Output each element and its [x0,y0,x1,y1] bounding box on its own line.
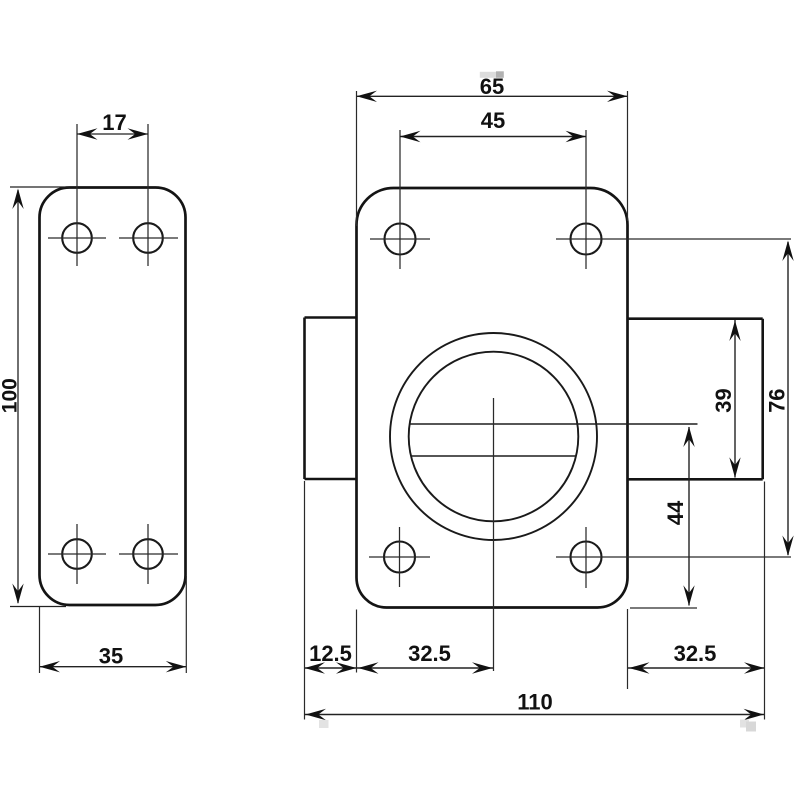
svg-text:110: 110 [517,690,553,715]
svg-text:17: 17 [102,110,126,135]
svg-text:35: 35 [99,644,123,669]
svg-text:32.5: 32.5 [674,641,717,666]
svg-text:100: 100 [0,378,21,413]
svg-text:12.5: 12.5 [309,641,352,666]
svg-text:76: 76 [765,388,790,412]
svg-text:45: 45 [481,108,505,133]
svg-text:44: 44 [663,500,688,525]
svg-text:32.5: 32.5 [408,641,451,666]
svg-text:39: 39 [711,388,736,412]
